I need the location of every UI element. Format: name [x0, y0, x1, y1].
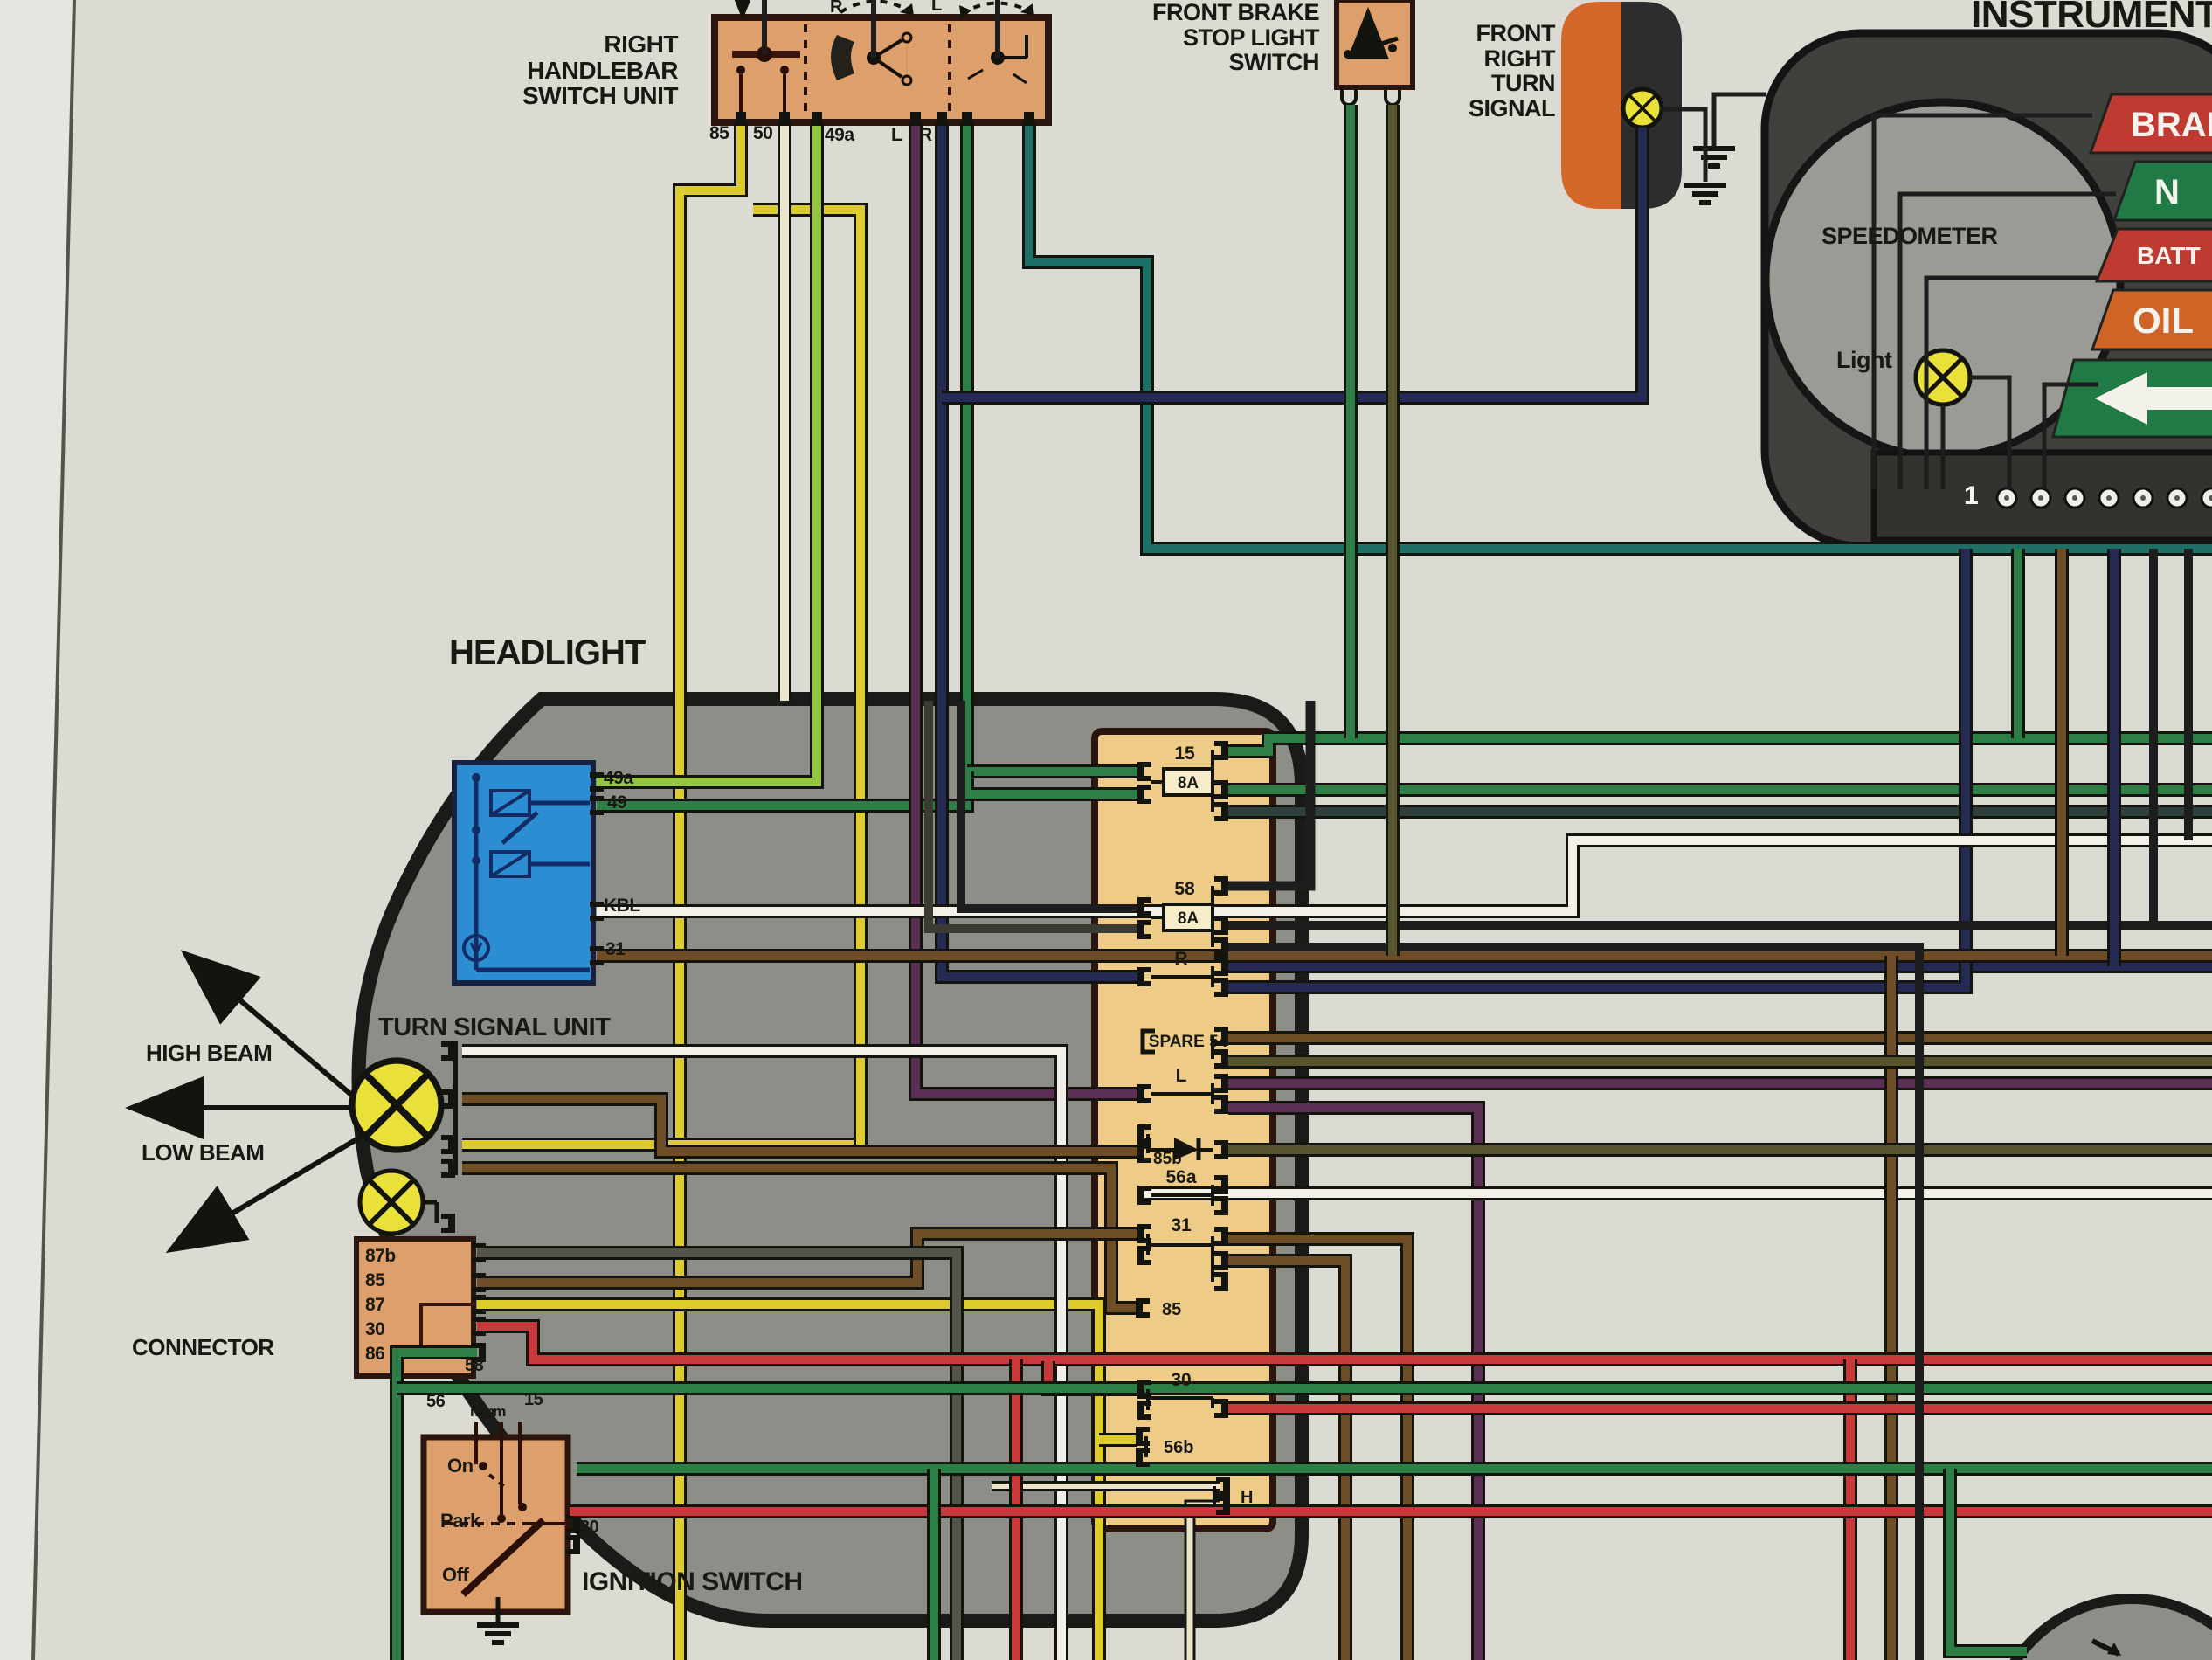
svg-text:8A: 8A [1178, 910, 1199, 928]
indicator-flag-OIL: OIL [2092, 290, 2212, 349]
svg-text:85: 85 [1162, 1300, 1181, 1319]
wire [1228, 947, 1919, 1660]
svg-text:BRAKE: BRAKE [2131, 106, 2212, 144]
svg-text:L: L [1176, 1066, 1187, 1086]
svg-text:BATT: BATT [2137, 242, 2201, 269]
ignition-switch [424, 1422, 580, 1643]
svg-text:R: R [1174, 949, 1187, 969]
wiring-diagram-photo: BRAKENBATTOIL8A158A58RSPARE 54L85b56a318… [0, 0, 2212, 1660]
svg-text:58: 58 [1174, 879, 1195, 899]
indicator-flag-BATT: BATT [2097, 229, 2212, 281]
wire [1950, 1469, 2027, 1651]
svg-text:56a: 56a [1165, 1167, 1196, 1187]
indicator-flag-BRAKE: BRAKE [2091, 94, 2212, 153]
svg-text:N: N [2154, 173, 2180, 211]
svg-text:15: 15 [1174, 744, 1195, 764]
svg-text:56b: 56b [1164, 1438, 1193, 1457]
brake-stop-light-switch [1337, 0, 1413, 105]
svg-text:8A: 8A [1178, 774, 1199, 792]
paper-edge [0, 0, 74, 1660]
indicator-flag-turn-arrow [2053, 360, 2212, 437]
svg-text:OIL: OIL [2133, 300, 2194, 341]
svg-text:30: 30 [1171, 1370, 1191, 1390]
svg-text:31: 31 [1171, 1215, 1192, 1235]
diagram-art: BRAKENBATTOIL8A158A58RSPARE 54L85b56a318… [0, 0, 2212, 1660]
wire [1714, 94, 1766, 147]
svg-text:H: H [1241, 1488, 1253, 1507]
turn-signal-unit [454, 763, 604, 983]
